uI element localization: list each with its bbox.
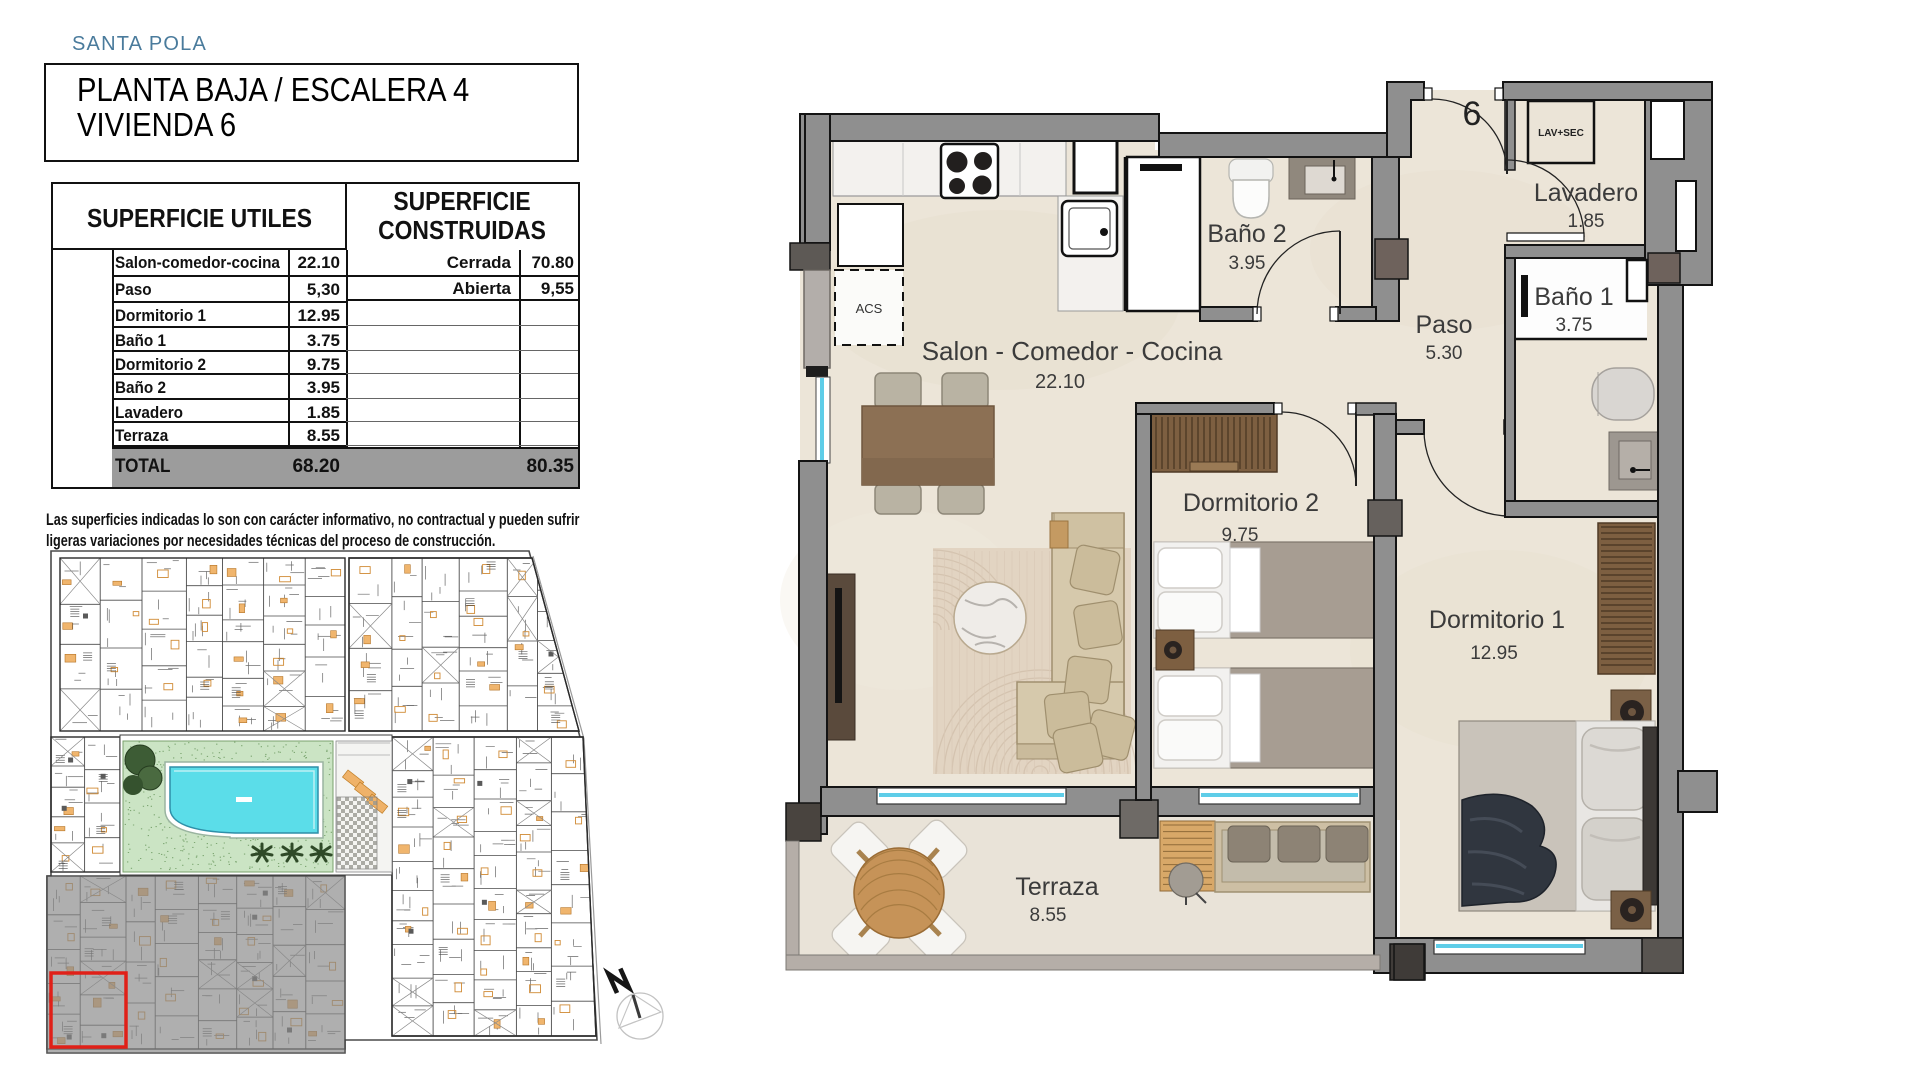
svg-text:1.85: 1.85	[1568, 211, 1605, 232]
svg-text:Lavadero: Lavadero	[1534, 179, 1638, 207]
svg-text:Baño 1: Baño 1	[1534, 283, 1613, 311]
svg-text:Terraza: Terraza	[1015, 873, 1098, 901]
svg-text:Paso: Paso	[1416, 311, 1473, 339]
svg-text:LAV+SEC: LAV+SEC	[1538, 128, 1584, 139]
svg-text:3.95: 3.95	[1229, 253, 1266, 274]
svg-text:6: 6	[1463, 95, 1482, 133]
svg-text:ACS: ACS	[856, 301, 883, 316]
svg-text:8.55: 8.55	[1030, 905, 1067, 926]
svg-text:3.75: 3.75	[1556, 315, 1593, 336]
svg-text:Dormitorio 2: Dormitorio 2	[1183, 489, 1319, 517]
svg-text:5.30: 5.30	[1426, 343, 1463, 364]
svg-text:22.10: 22.10	[1035, 371, 1085, 393]
svg-text:Dormitorio 1: Dormitorio 1	[1429, 606, 1565, 634]
svg-text:Salon - Comedor - Cocina: Salon - Comedor - Cocina	[922, 336, 1223, 366]
svg-text:Baño 2: Baño 2	[1207, 220, 1286, 248]
svg-text:12.95: 12.95	[1470, 643, 1518, 664]
svg-text:9.75: 9.75	[1222, 525, 1259, 546]
